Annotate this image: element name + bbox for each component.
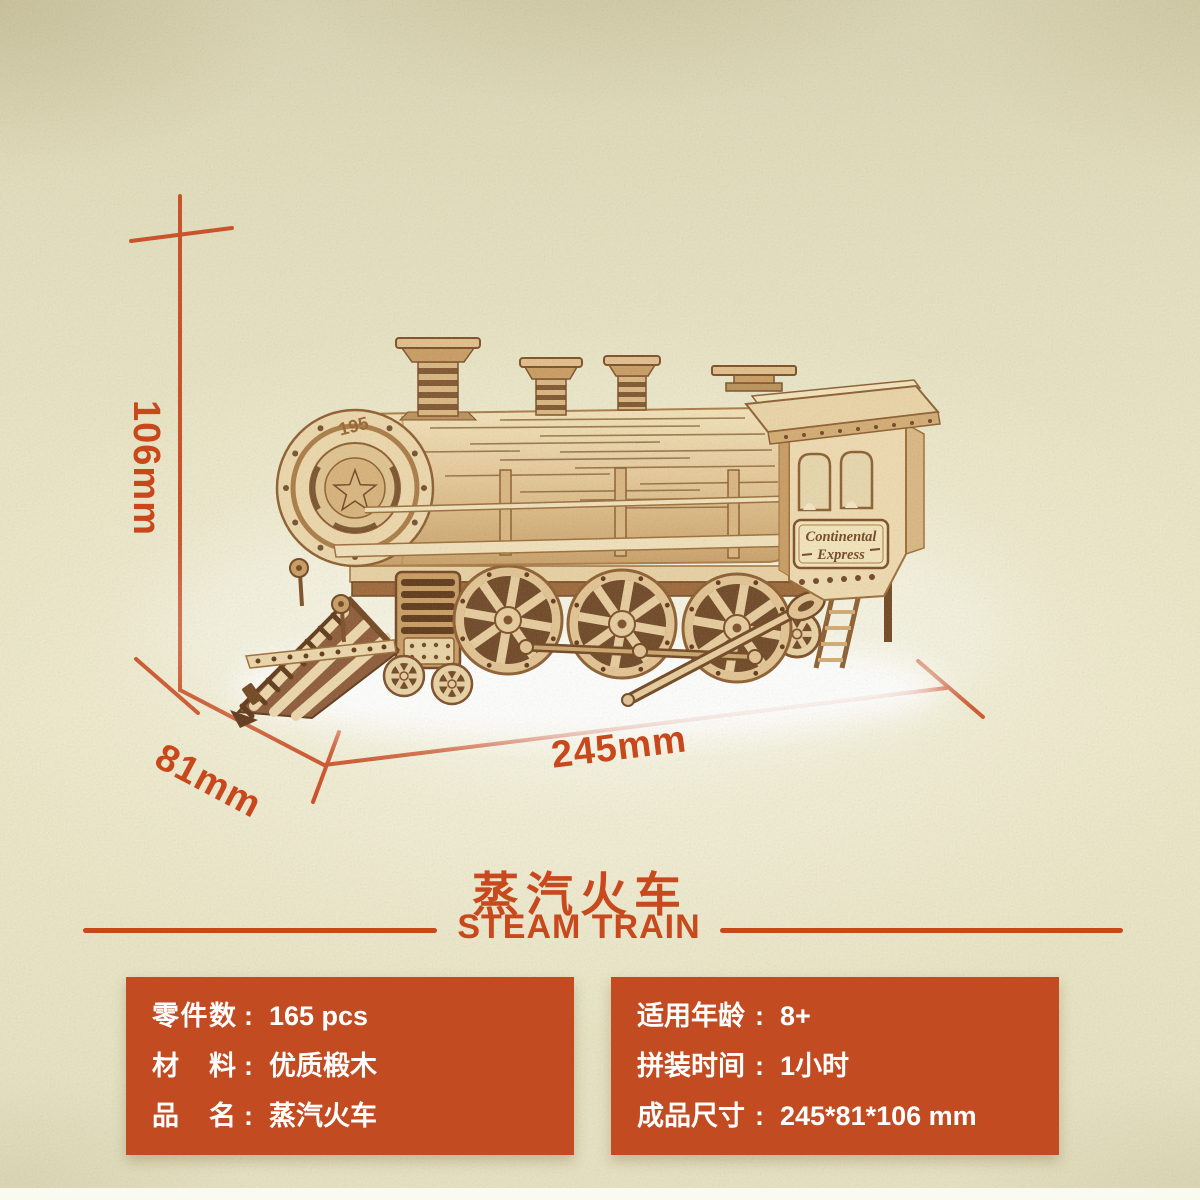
spec-value: 优质椴木: [269, 1049, 377, 1083]
cab-window-left: [799, 454, 830, 510]
front-wheel-2: [432, 664, 472, 704]
spec-colon: :: [755, 1099, 764, 1133]
smokestack-rear: [604, 356, 660, 410]
spec-row-age: 适用年龄 : 8+: [637, 999, 1049, 1033]
tick-depth-end: [313, 732, 339, 802]
cab-window-right: [841, 452, 872, 508]
title-rule-left: [83, 928, 437, 933]
spec-label: 品名: [152, 1099, 236, 1133]
spec-label: 成品尺寸: [637, 1099, 747, 1133]
drive-wheel-2: [568, 570, 676, 678]
spec-box-left: 零件数 : 165 pcs 材料 : 优质椴木 品名 : 蒸汽火车: [126, 977, 574, 1155]
spec-value: 165 pcs: [269, 999, 368, 1033]
product-showcase: 195: [0, 0, 1200, 1200]
roof-vent: [712, 366, 796, 391]
spec-label: 拼装时间: [637, 1049, 747, 1083]
spec-label: 材料: [152, 1049, 236, 1083]
spec-row-parts: 零件数 : 165 pcs: [152, 999, 564, 1033]
spec-colon: :: [244, 999, 253, 1033]
spec-value: 1小时: [780, 1049, 849, 1083]
smokestack-mid: [520, 358, 582, 415]
spec-colon: :: [244, 1099, 253, 1133]
product-title-en: STEAM TRAIN: [448, 908, 710, 947]
spec-colon: :: [755, 999, 764, 1033]
spec-row-material: 材料 : 优质椴木: [152, 1049, 564, 1083]
smokestack-front: [396, 338, 480, 420]
dimension-height-label: 106mm: [124, 400, 167, 536]
spec-label: 零件数: [152, 999, 236, 1033]
title-rule-right: [720, 928, 1123, 933]
spec-value: 245*81*106 mm: [780, 1099, 977, 1133]
spec-colon: :: [755, 1049, 764, 1083]
bottom-strip: [0, 1188, 1200, 1200]
spec-row-name: 品名 : 蒸汽火车: [152, 1099, 564, 1133]
front-wheel-1: [384, 656, 424, 696]
spec-value: 8+: [780, 999, 811, 1033]
spec-row-size: 成品尺寸 : 245*81*106 mm: [637, 1099, 1049, 1133]
sign-line2: Express: [816, 547, 865, 563]
train-illustration: 195: [155, 338, 1015, 760]
sign-line1: Continental: [806, 529, 877, 545]
drive-wheel-1: [454, 566, 562, 674]
gearbox: [396, 572, 460, 668]
cab-sign: Continental Express: [794, 520, 888, 568]
spec-label: 适用年龄: [637, 999, 747, 1033]
spec-box-right: 适用年龄 : 8+ 拼装时间 : 1小时 成品尺寸 : 245*81*106 m…: [611, 977, 1059, 1155]
spec-colon: :: [244, 1049, 253, 1083]
spec-value: 蒸汽火车: [269, 1099, 377, 1133]
spec-row-time: 拼装时间 : 1小时: [637, 1049, 1049, 1083]
